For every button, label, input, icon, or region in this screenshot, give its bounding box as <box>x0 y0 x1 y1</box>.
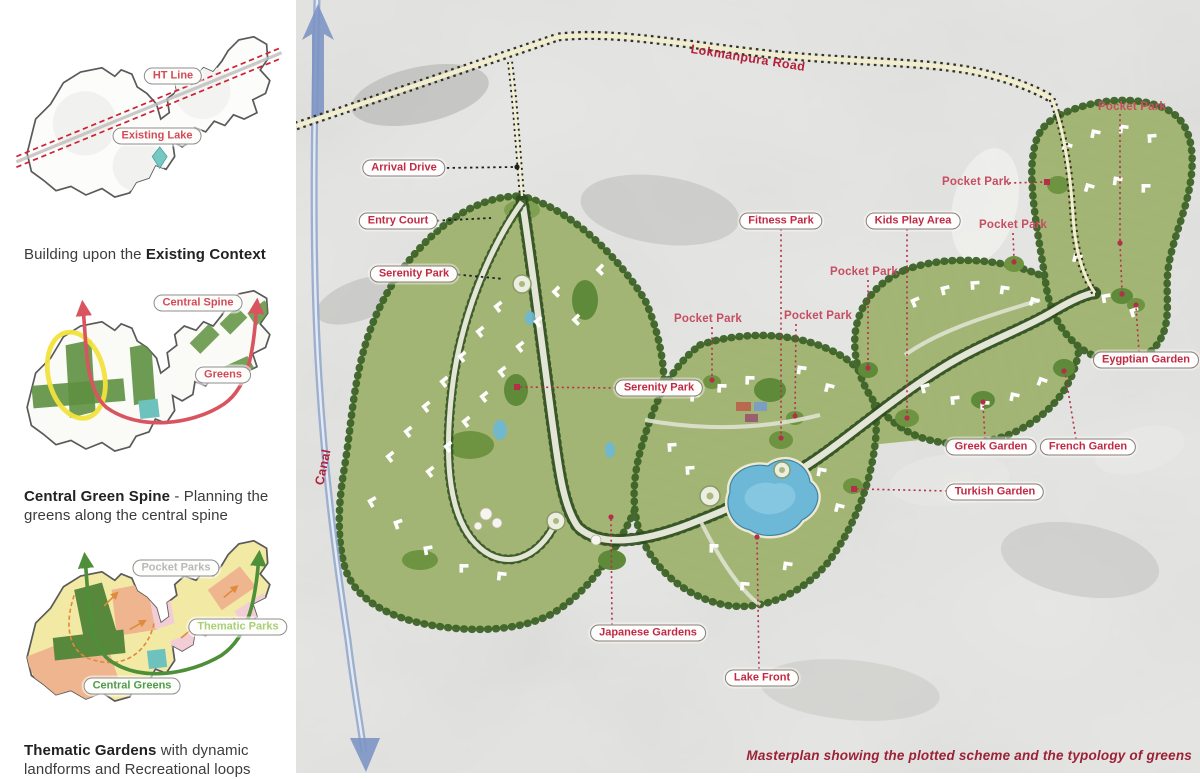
caption-central-green-spine: Central Green Spine - Planning the green… <box>24 487 286 525</box>
central-spine-label: Central Spine <box>154 295 243 312</box>
japanese-gardens-label: Japanese Gardens <box>590 625 706 642</box>
existing-context-diagram <box>10 24 288 212</box>
caption-existing-context: Building upon the Existing Context <box>24 245 286 264</box>
pocket-park-label-c3: Pocket Park <box>784 310 852 322</box>
pocket-park-label-c1: Pocket Park <box>830 266 898 278</box>
figure-existing-context: HT Line Existing Lake <box>10 24 288 212</box>
pocket-park-label-e1: Pocket Park <box>942 176 1010 188</box>
turkish-garden-label: Turkish Garden <box>946 484 1044 501</box>
existing-lake-label: Existing Lake <box>113 128 202 145</box>
figure-central-green-spine: Central Spine Greens <box>10 278 288 466</box>
caption-thematic-gardens: Thematic Gardens with dynamic landforms … <box>24 741 286 779</box>
thematic-parks-label: Thematic Parks <box>188 619 287 636</box>
lake-front-label: Lake Front <box>725 670 799 687</box>
greek-garden-label: Greek Garden <box>946 439 1037 456</box>
masterplan-graphic <box>296 0 1200 773</box>
pocket-park-label-ne: Pocket Park <box>1098 101 1166 113</box>
french-garden-label: French Garden <box>1040 439 1136 456</box>
pocket-park-label-c2: Pocket Park <box>674 313 742 325</box>
central-greens-label: Central Greens <box>84 678 181 695</box>
ht-line-label: HT Line <box>144 68 202 85</box>
eygptian-garden-label: Eygptian Garden <box>1093 352 1199 369</box>
masterplan-board: HT Line Existing Lake Building upon the … <box>0 0 1200 773</box>
entry-court-label: Entry Court <box>359 213 438 230</box>
kids-play-area-label: Kids Play Area <box>866 213 961 230</box>
serenity-park-west-label: Serenity Park <box>370 266 458 283</box>
pocket-park-label-e2: Pocket Park <box>979 219 1047 231</box>
figure-thematic-gardens: Pocket Parks Thematic Parks Central Gree… <box>10 528 288 716</box>
arrival-drive-label: Arrival Drive <box>362 160 445 177</box>
map-caption: Masterplan showing the plotted scheme an… <box>746 748 1192 763</box>
greens-label: Greens <box>195 367 251 384</box>
serenity-park-central-label: Serenity Park <box>615 380 703 397</box>
fitness-park-label: Fitness Park <box>739 213 822 230</box>
pocket-parks-label: Pocket Parks <box>132 560 219 577</box>
sidebar: HT Line Existing Lake Building upon the … <box>0 0 296 773</box>
masterplan-map: Lokmanpura Road Canal Arrival Drive Entr… <box>296 0 1200 773</box>
